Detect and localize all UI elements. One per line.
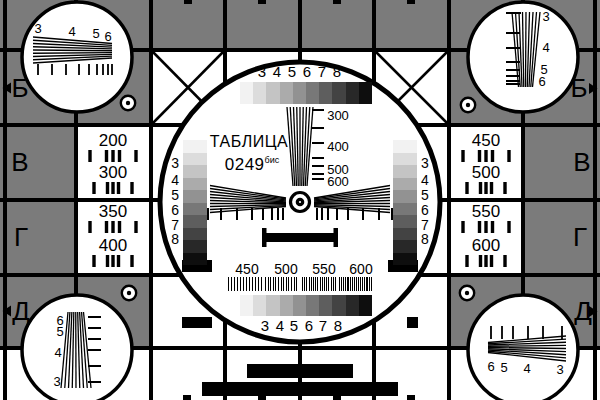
card-code: 0249бис (225, 156, 280, 173)
gray-label: 6 (305, 318, 313, 333)
wedge-label: 4 (54, 346, 61, 359)
edge-letter-right-b: Б (570, 75, 587, 101)
burst-label: 550 (312, 262, 335, 276)
cell-number: 500 (472, 164, 500, 181)
cell-number: 600 (472, 237, 500, 254)
edge-letter-right-g: Г (573, 224, 587, 250)
bottom-bar-long (202, 382, 398, 396)
burst-label: 600 (349, 262, 372, 276)
cell-number: 550 (472, 203, 500, 220)
wedge-label: 6 (538, 75, 545, 88)
gray-label: 6 (303, 64, 311, 79)
wedge-label: 3 (556, 363, 563, 376)
bottom-bar-short (247, 364, 353, 378)
edge-letter-left-g: Г (14, 224, 28, 250)
burst-grating-600 (339, 277, 372, 291)
gray-label: 7 (319, 318, 327, 333)
gray-label: 8 (334, 318, 342, 333)
cell-number: 200 (99, 132, 127, 149)
gray-label: 8 (421, 232, 429, 246)
vscale-label: 600 (327, 175, 349, 188)
wedge-label: 6 (487, 360, 494, 373)
burst-grating-450 (228, 277, 262, 291)
gray-label: 4 (421, 173, 429, 187)
grayscale-strip-bottom (240, 295, 372, 316)
burst-label: 450 (235, 262, 258, 276)
wedge-label: 5 (92, 27, 99, 40)
cell-number: 450 (472, 132, 500, 149)
edge-letter-right-v: В (573, 149, 590, 175)
wedge-label: 4 (68, 25, 75, 38)
edge-letter-left-b: Б (11, 75, 28, 101)
corner-circle-bottom-left (22, 295, 132, 400)
gray-label: 5 (288, 64, 296, 79)
gray-label: 5 (290, 318, 298, 333)
gray-label: 3 (171, 156, 179, 170)
card-code-number: 0249 (225, 155, 265, 174)
gray-label: 4 (276, 318, 284, 333)
gray-label: 5 (171, 188, 179, 202)
wedge-label: 4 (523, 362, 530, 375)
gray-label: 6 (421, 203, 429, 217)
gray-label: 5 (421, 188, 429, 202)
vscale-label: 400 (327, 140, 349, 153)
gray-label: 3 (258, 64, 266, 79)
grayscale-strip-right (393, 140, 417, 265)
burst-grating-500 (265, 277, 299, 291)
wedge-label: 6 (104, 30, 111, 43)
edge-letter-right-d: Д (574, 298, 592, 324)
gray-label: 4 (273, 64, 281, 79)
burst-grating-550 (302, 277, 336, 291)
wedge-label: 3 (542, 10, 549, 23)
wedge-label: 4 (542, 41, 549, 54)
wedge-label: 3 (53, 375, 60, 388)
gray-label: 8 (171, 232, 179, 246)
gray-label: 3 (261, 318, 269, 333)
cell-number: 350 (99, 203, 127, 220)
gray-label: 8 (333, 64, 341, 79)
cell-number: 400 (99, 237, 127, 254)
gray-label: 6 (171, 203, 179, 217)
card-title: ТАБЛИЦА (210, 134, 288, 150)
card-code-suffix: бис (265, 155, 280, 165)
wedge-label: 5 (56, 325, 63, 338)
gray-label: 7 (421, 218, 429, 232)
cell-number: 300 (99, 164, 127, 181)
tv-test-card: ТАБЛИЦА 0249бис 3 4 5 6 7 8 3 4 5 6 7 8 … (0, 0, 600, 400)
wedge-label: 3 (34, 22, 41, 35)
vscale-label: 300 (327, 109, 349, 122)
gray-label: 4 (171, 173, 179, 187)
wedge-label: 5 (500, 361, 507, 374)
test-card-graphics (0, 0, 600, 400)
gray-label: 7 (171, 218, 179, 232)
edge-letter-left-v: В (11, 149, 28, 175)
gray-label: 3 (421, 156, 429, 170)
grayscale-strip-top (240, 82, 372, 104)
burst-label: 500 (274, 262, 297, 276)
edge-letter-left-d: Д (12, 298, 30, 324)
gray-label: 7 (318, 64, 326, 79)
grayscale-strip-left (183, 140, 207, 265)
